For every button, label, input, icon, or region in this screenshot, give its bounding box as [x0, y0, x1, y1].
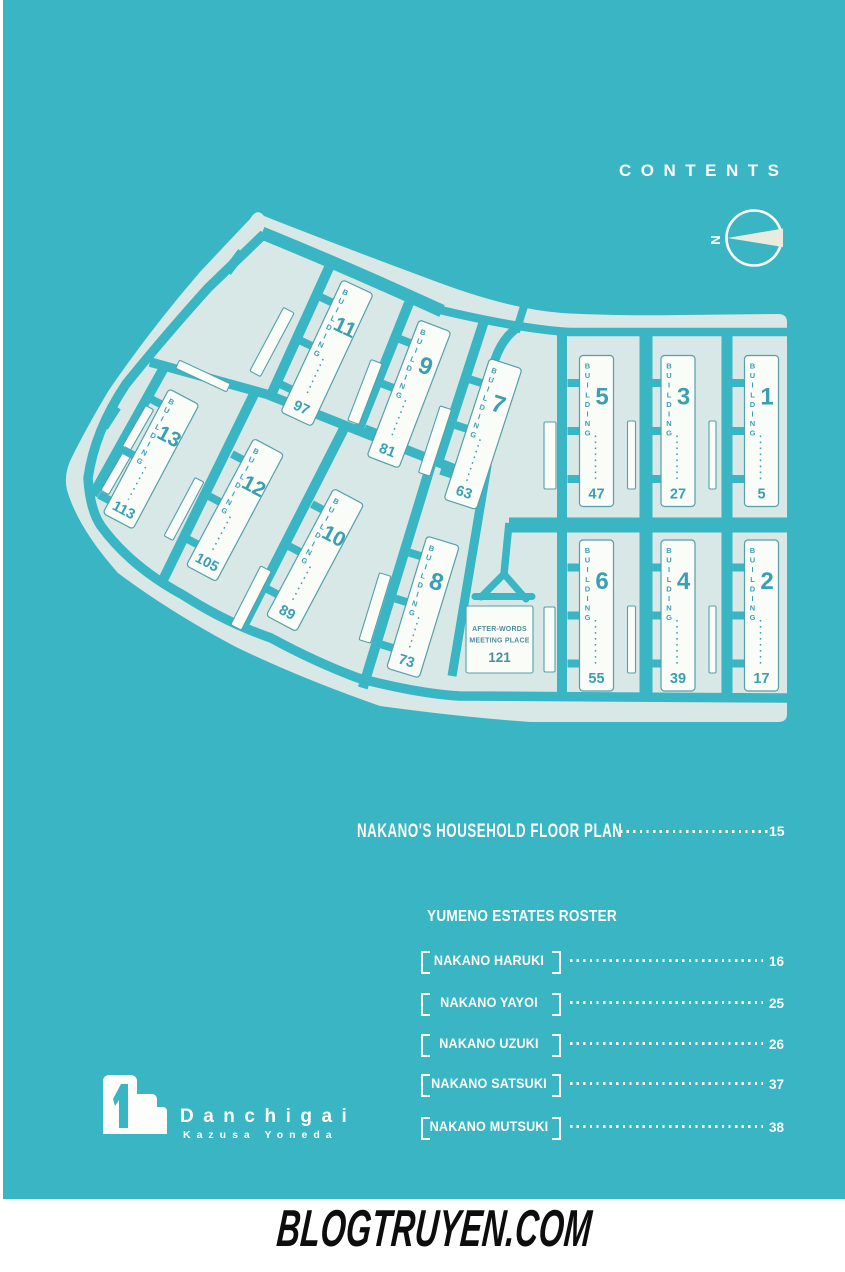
svg-text:121: 121	[488, 650, 511, 665]
svg-text:2: 2	[760, 568, 773, 595]
svg-text:Danchigai: Danchigai	[180, 1106, 356, 1127]
svg-text:5: 5	[757, 487, 765, 503]
svg-text:AFTER-WORDS: AFTER-WORDS	[472, 626, 527, 633]
svg-text:BUILDING: BUILDING	[750, 546, 756, 622]
svg-text:55: 55	[588, 671, 604, 687]
svg-text:BUILDING: BUILDING	[585, 546, 591, 622]
svg-text:3: 3	[677, 384, 690, 411]
svg-text:27: 27	[670, 487, 686, 503]
svg-text:BUILDING: BUILDING	[750, 362, 756, 438]
svg-text:1: 1	[760, 384, 773, 411]
svg-text:BUILDING: BUILDING	[585, 362, 591, 438]
svg-text:6: 6	[595, 568, 608, 595]
svg-text:BUILDING: BUILDING	[666, 546, 672, 622]
svg-text:17: 17	[753, 671, 769, 687]
svg-text:4: 4	[677, 568, 691, 595]
svg-text:47: 47	[588, 487, 604, 503]
svg-text:BUILDING: BUILDING	[666, 362, 672, 438]
svg-text:Kazusa Yoneda: Kazusa Yoneda	[183, 1129, 338, 1141]
svg-text:5: 5	[595, 384, 608, 411]
svg-text:N: N	[708, 235, 723, 244]
svg-text:39: 39	[670, 671, 686, 687]
svg-text:MEETING PLACE: MEETING PLACE	[469, 638, 529, 645]
